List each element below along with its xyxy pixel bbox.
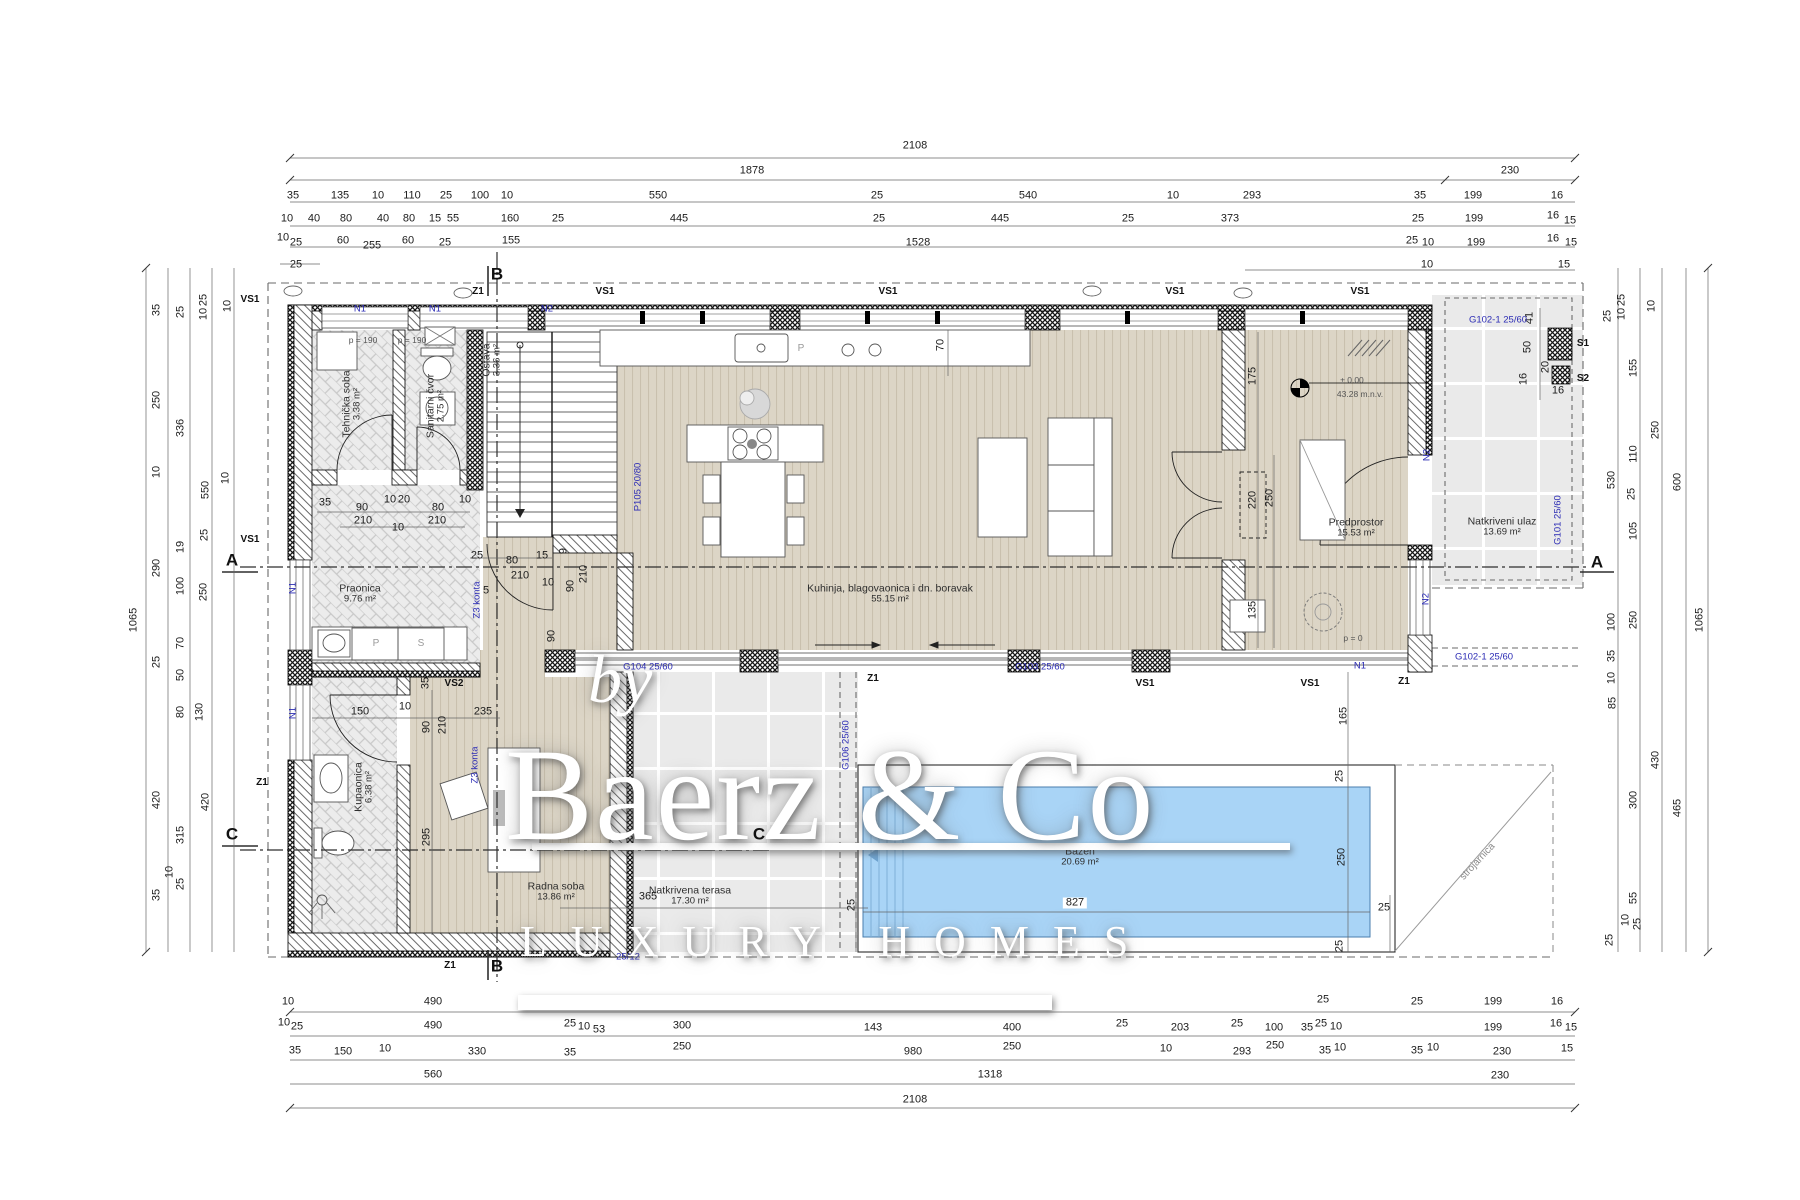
dimension-label: 199 xyxy=(1465,214,1483,225)
dimension-label: 290 xyxy=(152,559,163,577)
dimension-label: 16 xyxy=(1551,191,1563,202)
dimension-label: 35 xyxy=(1411,1046,1423,1057)
dimension-label: 10 xyxy=(1607,672,1618,684)
dimension-label: 199 xyxy=(1467,238,1485,249)
dimension-label: 199 xyxy=(1484,1023,1502,1034)
wall-tag: Z1 xyxy=(1398,677,1410,687)
dimension-label: 35 xyxy=(152,889,163,901)
dimension-label: 445 xyxy=(670,214,688,225)
opening-tag: N1 xyxy=(354,304,366,314)
annotation: p = 190 xyxy=(349,336,378,345)
dimension-label: 53 xyxy=(593,1025,605,1036)
room-area: 3.36 m² xyxy=(493,343,504,376)
dimension-label: 25 xyxy=(871,191,883,202)
room-area: 3.38 m² xyxy=(353,370,364,437)
dimension-label: 80 xyxy=(403,214,415,225)
dimension-label: 293 xyxy=(1243,191,1261,202)
dimension-label: 105 xyxy=(1629,522,1640,540)
opening-tag: P105 20/80 xyxy=(633,463,643,512)
dimension-label: 25 xyxy=(176,306,187,318)
wall-tag: VS1 xyxy=(596,287,615,297)
dimension-label: 10 xyxy=(1330,1022,1342,1033)
dimension-label: 25 xyxy=(1627,488,1638,500)
dimension-label: 203 xyxy=(1171,1023,1189,1034)
opening-tag: G103 25/60 xyxy=(1015,662,1065,672)
dimension-label: 70 xyxy=(176,637,187,649)
dimension-label: 160 xyxy=(501,214,519,225)
wall-tag: VS2 xyxy=(445,679,464,689)
dimension-label: 10 xyxy=(542,578,554,589)
dimension-label: 25 xyxy=(1335,770,1346,782)
dimension-label: 230 xyxy=(1493,1047,1511,1058)
section-mark: A xyxy=(1591,554,1603,571)
dimension-label: 35 xyxy=(152,304,163,316)
dimension-label: 25 xyxy=(290,260,302,271)
opening-tag: N2 xyxy=(1422,449,1432,461)
dimension-label: 1065 xyxy=(1695,608,1706,632)
room-label: Tehnička soba3.38 m² xyxy=(341,370,364,437)
dimension-label: 80 xyxy=(506,556,518,567)
wall-tag: Z1 xyxy=(444,961,456,971)
dimension-label: 25 xyxy=(176,878,187,890)
dimension-label: 25 xyxy=(1335,940,1346,952)
watermark-by: by xyxy=(588,640,652,719)
dimension-label: 35 xyxy=(421,677,432,689)
dimension-label: 100 xyxy=(176,577,187,595)
dimension-label: 15 xyxy=(536,551,548,562)
elevation-value: ± 0.00 xyxy=(1340,376,1364,385)
dimension-label: 35 xyxy=(319,498,331,509)
dimension-label: 210 xyxy=(438,716,449,734)
elevation-datum: 43.28 m.n.v. xyxy=(1337,390,1383,399)
dimension-label: 293 xyxy=(1233,1047,1251,1058)
dimension-label: 465 xyxy=(1673,799,1684,817)
dimension-label: 250 xyxy=(1266,1041,1284,1052)
room-label: Natkrivena terasa17.30 m² xyxy=(649,885,731,908)
annotation: p = 0 xyxy=(1343,634,1362,643)
dimension-label: 445 xyxy=(991,214,1009,225)
dimension-label: 16 xyxy=(1547,211,1559,222)
staircase xyxy=(487,332,617,537)
opening-tag: N1 xyxy=(429,304,441,314)
annotation: P xyxy=(798,344,805,354)
dimension-label: 16 xyxy=(1550,1019,1562,1030)
annotation: S xyxy=(418,639,425,649)
room-area: 17.30 m² xyxy=(649,897,731,908)
room-label: Kuhinja, blagovaonica i dn. boravak55.15… xyxy=(807,583,973,606)
dimension-label: 250 xyxy=(1265,489,1276,507)
dimension-label: 15 xyxy=(1564,216,1576,227)
dimension-label: 373 xyxy=(1221,214,1239,225)
floor-plan-page: by Baerz & Co LUXURY HOMES ± 0.00 43.28 … xyxy=(0,0,1800,1200)
dimension-label: 155 xyxy=(1629,359,1640,377)
dimension-label: 16 xyxy=(1519,373,1530,385)
dimension-label: 20 xyxy=(398,495,410,506)
dimension-label: 90 xyxy=(547,630,558,642)
dimension-label: 15 xyxy=(1565,1023,1577,1034)
room-label: Sanitarni čvor2.75 m² xyxy=(425,374,448,438)
dimension-label: 10 xyxy=(1621,914,1632,926)
dimension-label: 25 xyxy=(1617,294,1628,306)
dimension-label: 490 xyxy=(424,1021,442,1032)
dimension-label: 16 xyxy=(1551,997,1563,1008)
room-area: 15.53 m² xyxy=(1329,529,1384,540)
dimension-label: 35 xyxy=(1319,1046,1331,1057)
dimension-label: 430 xyxy=(1651,751,1662,769)
dimension-label: 10 xyxy=(277,233,289,244)
dimension-label: 250 xyxy=(673,1042,691,1053)
dimension-label: 250 xyxy=(152,391,163,409)
dimension-label: 25 xyxy=(199,294,210,306)
dimension-label: 90 xyxy=(356,503,368,514)
dimension-label: 100 xyxy=(1607,613,1618,631)
dimension-label: 35 xyxy=(564,1048,576,1059)
dimension-label: 9 xyxy=(559,548,570,554)
wall-tag: S1 xyxy=(1577,339,1589,349)
dimension-label: 10 xyxy=(1334,1043,1346,1054)
dimension-label: 400 xyxy=(1003,1023,1021,1034)
dimension-label: 1878 xyxy=(740,166,764,177)
wall-tag: VS1 xyxy=(879,287,898,297)
dimension-label: 250 xyxy=(1651,421,1662,439)
dimension-label: 295 xyxy=(422,828,433,846)
dimension-label: 135 xyxy=(331,191,349,202)
dimension-label: 15 xyxy=(1565,238,1577,249)
dimension-label: 10 xyxy=(282,997,294,1008)
dimension-label: 80 xyxy=(176,706,187,718)
dimension-label: 10 xyxy=(221,472,232,484)
dimension-label: 25 xyxy=(847,899,858,911)
dimension-label: 25 xyxy=(1411,997,1423,1008)
dimension-label: 35 xyxy=(1414,191,1426,202)
dimension-label: 550 xyxy=(201,481,212,499)
dimension-label: 80 xyxy=(340,214,352,225)
dimension-label: 25 xyxy=(1122,214,1134,225)
dimension-label: 210 xyxy=(428,516,446,527)
dimension-label: 55 xyxy=(447,214,459,225)
wall-tag: S2 xyxy=(1577,374,1589,384)
dimension-label: 25 xyxy=(1605,934,1616,946)
dimension-label: 60 xyxy=(337,236,349,247)
wall-tag: Z1 xyxy=(256,778,268,788)
opening-tag: G101 25/60 xyxy=(1553,495,1563,545)
dimension-label: 827 xyxy=(1063,898,1087,909)
room-area: 6.38 m² xyxy=(365,762,376,812)
dimension-label: 50 xyxy=(176,669,187,681)
dimension-label: 70 xyxy=(936,339,947,351)
wall-tag: VS1 xyxy=(1351,287,1370,297)
annotation: p = 190 xyxy=(398,336,427,345)
dimension-label: 155 xyxy=(502,236,520,247)
room-area: 55.15 m² xyxy=(807,595,973,606)
dimension-label: 10 xyxy=(223,300,234,312)
dimension-label: 10 xyxy=(578,1022,590,1033)
dimension-label: 85 xyxy=(1608,697,1619,709)
wall-tag: VS1 xyxy=(1301,679,1320,689)
dimension-label: 10 xyxy=(372,191,384,202)
room-area: 9.76 m² xyxy=(339,595,380,606)
dimension-label: 10 xyxy=(384,495,396,506)
dimension-label: 19 xyxy=(176,541,187,553)
dimension-label: 25 xyxy=(1406,236,1418,247)
dimension-label: 15 xyxy=(1561,1044,1573,1055)
dimension-label: 210 xyxy=(354,516,372,527)
dimension-label: 250 xyxy=(1629,611,1640,629)
dimension-label: 35 xyxy=(1607,650,1618,662)
opening-tag: N1 xyxy=(1354,661,1366,671)
dimension-label: 25 xyxy=(873,214,885,225)
dimension-label: 5 xyxy=(483,586,489,597)
opening-tag: N2 xyxy=(1421,593,1431,605)
wall-tag: Z1 xyxy=(472,287,484,297)
dimension-label: 25 xyxy=(439,238,451,249)
dimension-label: 10 xyxy=(1427,1043,1439,1054)
dimension-label: 35 xyxy=(287,191,299,202)
dimension-label: 540 xyxy=(1019,191,1037,202)
dimension-label: 25 xyxy=(1378,903,1390,914)
dimension-label: 16 xyxy=(1552,386,1564,397)
dimension-label: 2108 xyxy=(903,141,927,152)
dimension-label: 150 xyxy=(351,707,369,718)
dimension-label: 25 xyxy=(152,656,163,668)
room-label: Predprostor15.53 m² xyxy=(1329,517,1384,540)
dimension-label: 25 xyxy=(440,191,452,202)
dimension-label: 250 xyxy=(1003,1042,1021,1053)
dimension-label: 10 xyxy=(1422,238,1434,249)
dimension-label: 100 xyxy=(471,191,489,202)
dimension-label: 35 xyxy=(289,1046,301,1057)
section-mark: C xyxy=(226,826,238,843)
dimension-label: 210 xyxy=(579,565,590,583)
dimension-label: 210 xyxy=(511,571,529,582)
dimension-label: 25 xyxy=(1603,310,1614,322)
dimension-label: 25 xyxy=(1231,1019,1243,1030)
dimension-label: 250 xyxy=(199,583,210,601)
dimension-label: 420 xyxy=(152,791,163,809)
dimension-label: 35 xyxy=(1301,1023,1313,1034)
dimension-label: 10 xyxy=(199,308,210,320)
opening-tag: N1 xyxy=(288,707,298,719)
dimension-label: 1065 xyxy=(129,608,140,632)
dimension-label: 90 xyxy=(422,721,433,733)
dimension-label: 10 xyxy=(281,214,293,225)
dimension-label: 150 xyxy=(334,1047,352,1058)
dimension-label: 300 xyxy=(673,1021,691,1032)
wall-tag: VS1 xyxy=(1136,679,1155,689)
dimension-label: 130 xyxy=(195,703,206,721)
dimension-label: 60 xyxy=(402,236,414,247)
room-label: Kupaonica6.38 m² xyxy=(353,762,376,812)
room-label: Natkriveni ulaz13.69 m² xyxy=(1468,516,1537,539)
dimension-label: 10 xyxy=(379,1044,391,1055)
opening-tag: N2 xyxy=(541,304,553,314)
watermark-tagline: LUXURY HOMES xyxy=(520,916,1152,967)
room-area: 2.75 m² xyxy=(437,374,448,438)
dimension-label: 100 xyxy=(1265,1023,1283,1034)
dimension-label: 330 xyxy=(468,1047,486,1058)
wall-tag: VS1 xyxy=(1166,287,1185,297)
dimension-label: 110 xyxy=(1629,445,1640,463)
dimension-label: 15 xyxy=(1558,260,1570,271)
opening-tag: G102-1 25/60 xyxy=(1469,315,1527,325)
dimension-label: 90 xyxy=(566,580,577,592)
dimension-label: 315 xyxy=(176,826,187,844)
dimension-label: 600 xyxy=(1673,473,1684,491)
dimension-label: 110 xyxy=(403,191,421,202)
dimension-label: 25 xyxy=(1633,918,1644,930)
dimension-label: 336 xyxy=(176,419,187,437)
dimension-label: 2108 xyxy=(903,1095,927,1106)
dimension-label: 80 xyxy=(432,503,444,514)
dimension-label: 560 xyxy=(424,1070,442,1081)
dimension-label: 25 xyxy=(290,238,302,249)
dimension-label: 10 xyxy=(152,466,163,478)
wall-tag: VS1 xyxy=(241,295,260,305)
room-label: Praonica9.76 m² xyxy=(339,583,380,606)
dimension-label: 230 xyxy=(1501,166,1519,177)
dimension-label: 235 xyxy=(474,707,492,718)
dimension-label: 25 xyxy=(1317,995,1329,1006)
watermark-brand: Baerz & Co xyxy=(505,718,1155,871)
dimension-label: 10 xyxy=(1160,1044,1172,1055)
room-label: Ostava3.36 m² xyxy=(481,343,504,376)
dimension-label: 10 xyxy=(392,523,404,534)
dimension-label: 10 xyxy=(1617,308,1628,320)
room-label: Radna soba13.86 m² xyxy=(528,881,585,904)
dimension-label: 300 xyxy=(1629,791,1640,809)
opening-tag: N1 xyxy=(288,582,298,594)
dimension-label: 1318 xyxy=(978,1070,1002,1081)
opening-tag: Z3 konta xyxy=(470,747,480,784)
dimension-label: 143 xyxy=(864,1023,882,1034)
dimension-label: 135 xyxy=(1248,601,1259,619)
dimension-label: 15 xyxy=(429,214,441,225)
dimension-label: 10 xyxy=(1421,260,1433,271)
dimension-label: 20 xyxy=(1541,361,1552,373)
dimension-label: 490 xyxy=(424,997,442,1008)
dimension-label: 25 xyxy=(1412,214,1424,225)
dimension-label: 530 xyxy=(1607,471,1618,489)
dimension-label: 199 xyxy=(1464,191,1482,202)
opening-tag: G102-1 25/60 xyxy=(1455,652,1513,662)
dimension-label: 50 xyxy=(1523,341,1534,353)
dimension-label: 10 xyxy=(1167,191,1179,202)
section-mark: A xyxy=(226,552,238,569)
dimension-label: 255 xyxy=(363,241,381,252)
dimension-label: 25 xyxy=(1315,1019,1327,1030)
dimension-label: 25 xyxy=(1116,1019,1128,1030)
dimension-label: 10 xyxy=(459,495,471,506)
dimension-label: 420 xyxy=(201,793,212,811)
section-mark: B xyxy=(491,266,503,283)
dimension-label: 165 xyxy=(1339,707,1350,725)
dimension-label: 10 xyxy=(501,191,513,202)
opening-tag: Z3 konta xyxy=(472,582,482,619)
dimension-label: 25 xyxy=(200,529,211,541)
dimension-label: 10 xyxy=(165,866,176,878)
wall-tag: Z1 xyxy=(867,674,879,684)
dimension-label: 55 xyxy=(1629,892,1640,904)
annotation: P xyxy=(373,639,380,649)
dimension-label: 10 xyxy=(278,1018,290,1029)
dimension-label: 1528 xyxy=(906,238,930,249)
dimension-label: 40 xyxy=(308,214,320,225)
dimension-label: 230 xyxy=(1491,1071,1509,1082)
dimension-label: 16 xyxy=(1547,234,1559,245)
dimension-label: 40 xyxy=(377,214,389,225)
dimension-label: 175 xyxy=(1248,367,1259,385)
section-mark: B xyxy=(491,958,503,975)
dimension-label: 25 xyxy=(471,551,483,562)
dimension-label: 25 xyxy=(291,1022,303,1033)
watermark-rule xyxy=(518,995,1052,1010)
dimension-label: 980 xyxy=(904,1047,922,1058)
dimension-label: 199 xyxy=(1484,997,1502,1008)
room-area: 13.86 m² xyxy=(528,893,585,904)
dimension-label: 220 xyxy=(1248,491,1259,509)
dimension-label: 550 xyxy=(649,191,667,202)
dimension-label: 10 xyxy=(1647,300,1658,312)
dimension-label: 250 xyxy=(1337,848,1348,866)
dimension-label: 25 xyxy=(564,1019,576,1030)
dimension-label: 10 xyxy=(399,702,411,713)
dimension-label: 25 xyxy=(552,214,564,225)
room-area: 13.69 m² xyxy=(1468,528,1537,539)
wall-tag: VS1 xyxy=(241,535,260,545)
